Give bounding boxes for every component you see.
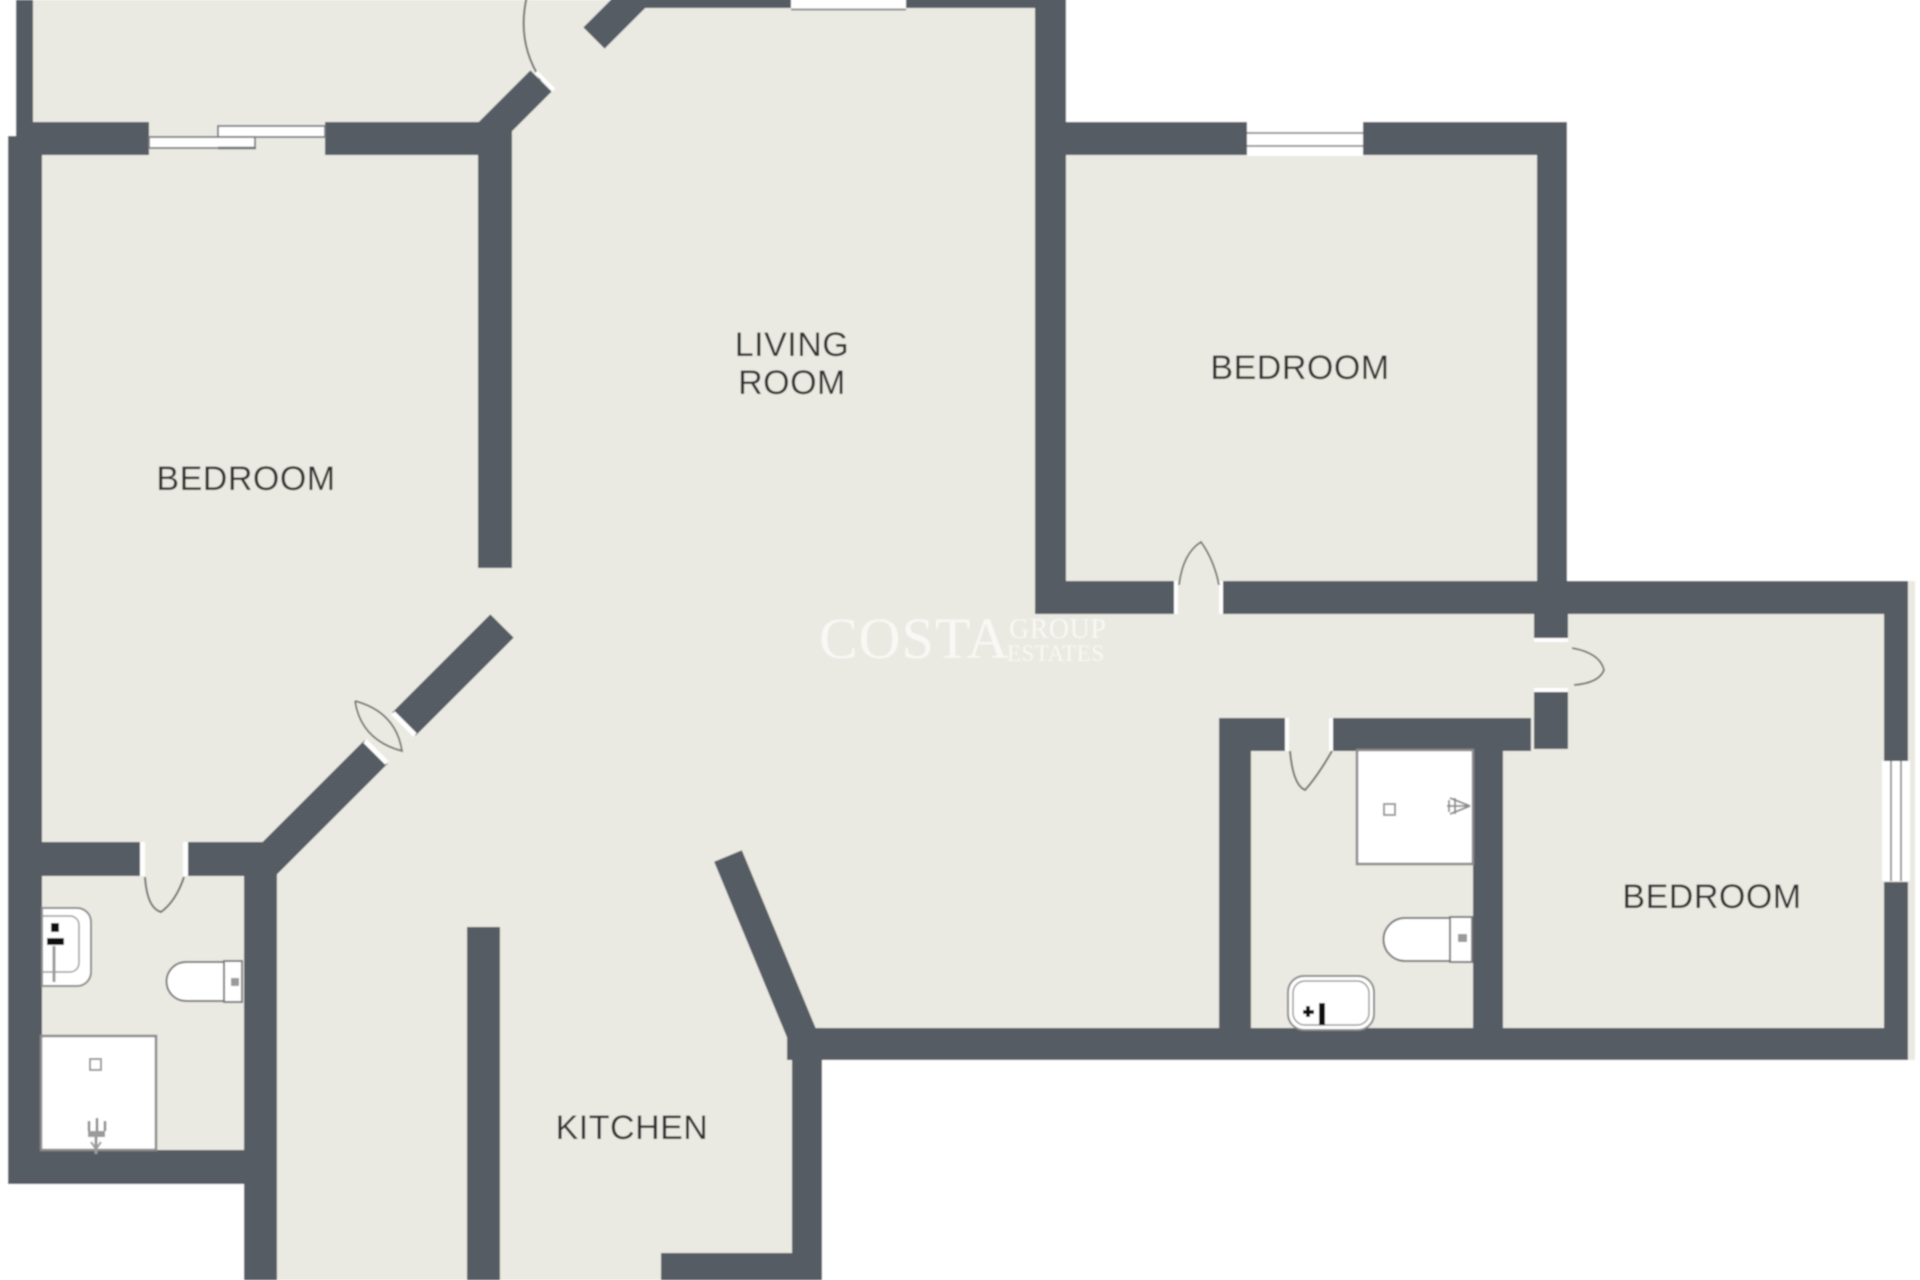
- svg-text:BEDROOM: BEDROOM: [1622, 878, 1801, 916]
- svg-text:COSTA: COSTA: [819, 606, 1010, 671]
- svg-text:BEDROOM: BEDROOM: [156, 460, 335, 498]
- svg-text:BEDROOM: BEDROOM: [1210, 349, 1389, 387]
- svg-text:ESTATES: ESTATES: [1007, 641, 1105, 666]
- svg-text:LIVING: LIVING: [735, 326, 849, 364]
- svg-text:ROOM: ROOM: [738, 364, 846, 402]
- svg-text:KITCHEN: KITCHEN: [556, 1109, 709, 1147]
